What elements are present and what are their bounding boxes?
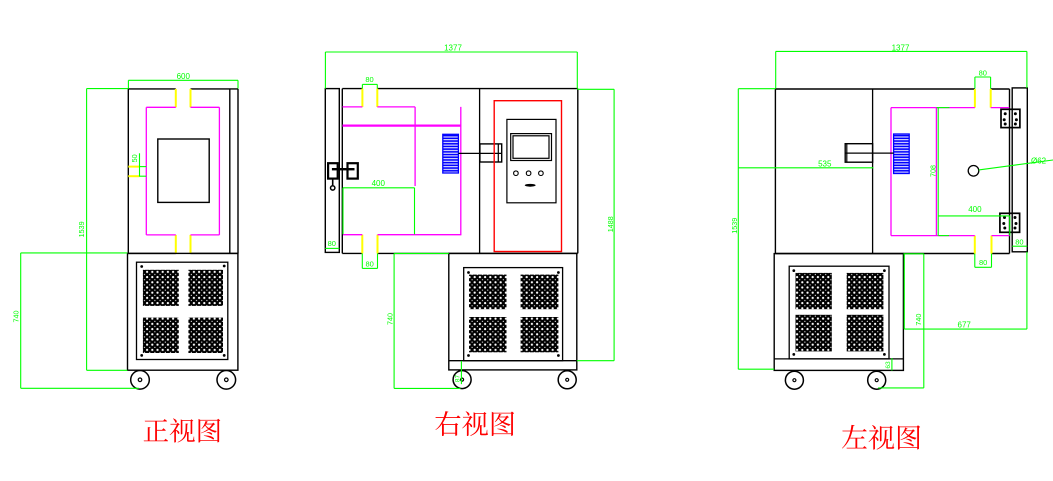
svg-text:1488: 1488 bbox=[606, 216, 615, 232]
svg-text:708: 708 bbox=[928, 165, 937, 177]
svg-text:535: 535 bbox=[818, 159, 832, 168]
svg-text:1377: 1377 bbox=[892, 43, 910, 52]
svg-text:80: 80 bbox=[1015, 238, 1023, 247]
svg-text:600: 600 bbox=[177, 72, 191, 81]
svg-text:1377: 1377 bbox=[444, 44, 462, 53]
svg-text:677: 677 bbox=[958, 321, 972, 330]
svg-text:400: 400 bbox=[372, 179, 386, 188]
svg-text:80: 80 bbox=[979, 258, 987, 267]
svg-text:63: 63 bbox=[885, 361, 892, 369]
svg-text:740: 740 bbox=[914, 314, 923, 326]
svg-text:1539: 1539 bbox=[730, 218, 739, 234]
svg-text:87: 87 bbox=[454, 375, 461, 383]
svg-text:400: 400 bbox=[968, 205, 982, 214]
svg-text:740: 740 bbox=[385, 313, 394, 325]
svg-text:1539: 1539 bbox=[77, 221, 86, 237]
svg-text:Ø62: Ø62 bbox=[1031, 156, 1047, 165]
svg-text:80: 80 bbox=[366, 260, 374, 269]
svg-text:80: 80 bbox=[328, 239, 336, 248]
svg-text:50: 50 bbox=[130, 154, 139, 162]
svg-text:740: 740 bbox=[11, 311, 20, 323]
svg-text:80: 80 bbox=[979, 68, 987, 77]
svg-text:80: 80 bbox=[365, 75, 373, 84]
